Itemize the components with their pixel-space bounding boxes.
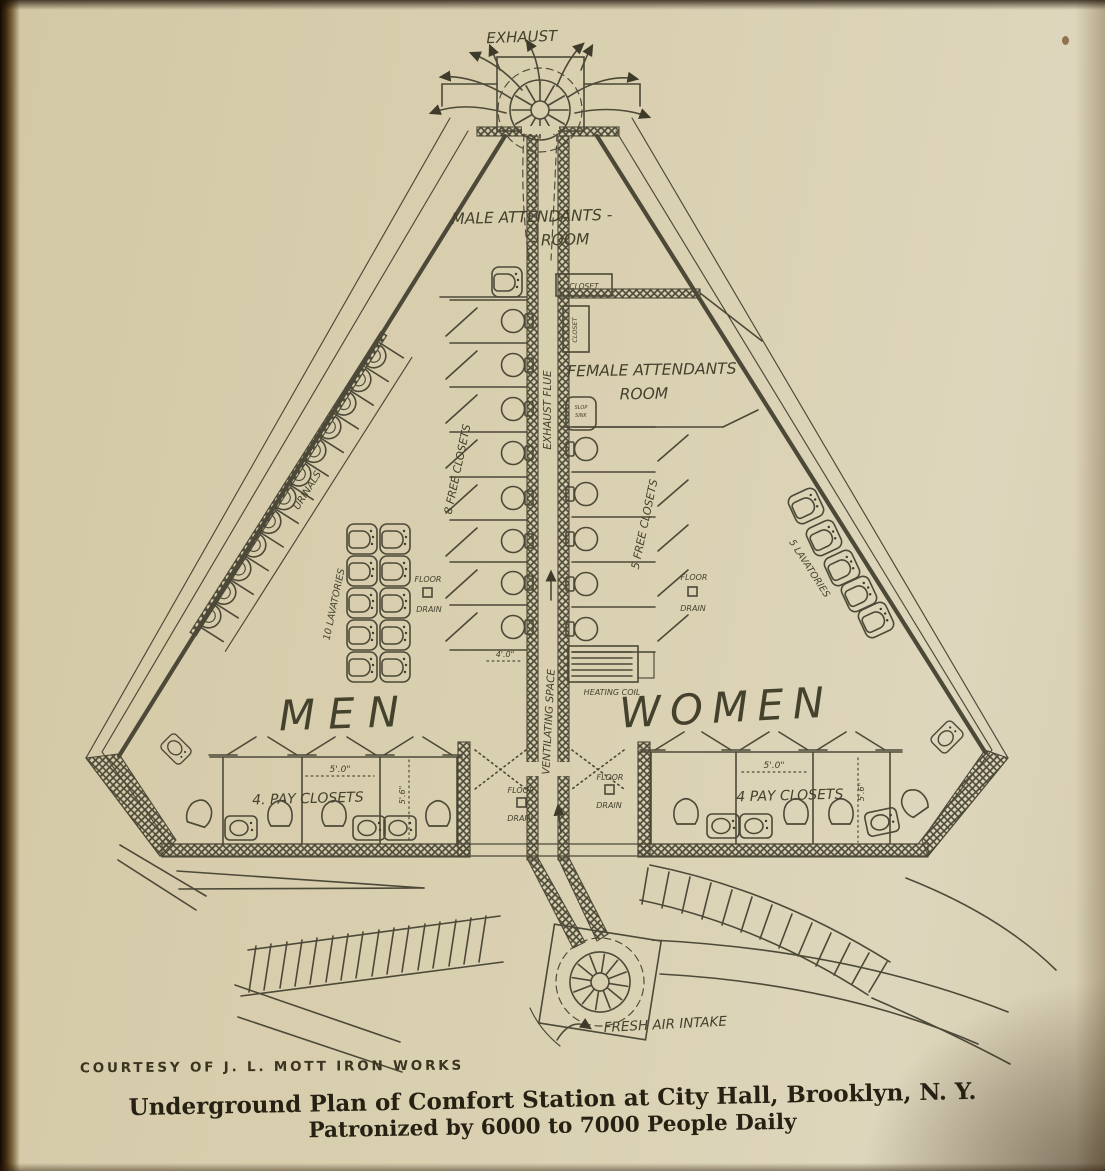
bottom-wall-left — [162, 844, 470, 857]
lavatory — [380, 588, 410, 618]
toilet — [674, 799, 698, 824]
lavatory — [856, 600, 896, 640]
sink — [740, 814, 772, 838]
stairs-left — [118, 845, 503, 1072]
lavatory — [380, 620, 410, 650]
toilet — [896, 785, 930, 820]
corner-sink — [929, 719, 965, 755]
closet-vertical-label: CLOSET — [571, 316, 579, 342]
sink — [864, 807, 900, 837]
scanned-page: EXHAUST EXHAUST FLUE VENTILATING SPACE C… — [0, 0, 1105, 1171]
courtesy-line: COURTESY OF J. L. MOTT IRON WORKS — [80, 1058, 464, 1077]
lavatory — [380, 556, 410, 586]
female-attendants-label2: ROOM — [619, 385, 668, 404]
lavatory — [347, 652, 377, 682]
dim-5ft6: 5'.6" — [857, 783, 866, 802]
svg-text:DRAIN: DRAIN — [507, 814, 533, 823]
lavatory — [822, 548, 862, 588]
female-attendants-label: FEMALE ATTENDANTS — [567, 360, 737, 381]
exhaust-flue-label: EXHAUST FLUE — [542, 370, 554, 450]
fresh-air-intake-label: FRESH AIR INTAKE — [603, 1014, 727, 1036]
lavatory — [347, 524, 377, 554]
men-room-label: MEN — [278, 687, 413, 741]
lavatory — [380, 524, 410, 554]
toilet — [566, 483, 598, 506]
page-gutter-shadow — [0, 0, 20, 1171]
floor-drain: FLOOR DRAIN — [415, 575, 442, 614]
floor-drain: FLOOR DRAIN — [680, 573, 707, 613]
ventilating-space-label: VENTILATING SPACE — [540, 668, 558, 775]
entry-vestibules — [458, 742, 650, 857]
pay-closets-women: 5'.0" 5'.6" 4 PAY CLOSETS — [640, 719, 965, 844]
svg-text:SINK: SINK — [575, 413, 587, 419]
svg-text:SLOP: SLOP — [575, 405, 588, 411]
toilet — [566, 438, 598, 461]
svg-text:DRAIN: DRAIN — [596, 801, 622, 810]
lavatories-men: 10 LAVATORIES — [322, 524, 410, 682]
page-corner-shadow — [825, 951, 1105, 1171]
toilet — [426, 801, 450, 826]
free-closets-women: 5 FREE CLOSETS — [566, 427, 688, 652]
pay-closets-men: 5'.0" 5'.6" 4. PAY CLOSETS — [159, 732, 462, 844]
svg-text:FLOOR: FLOOR — [415, 575, 442, 584]
female-attendants-room: CLOSET SLOP SINK FEMALE ATTENDANTS ROOM — [560, 289, 762, 430]
sink — [384, 816, 416, 840]
toilet — [566, 573, 598, 596]
dim-5ft: 5'.0" — [330, 765, 351, 775]
bevel-wall-left — [86, 754, 176, 856]
intake-fan-icon — [566, 948, 635, 1017]
dim-5ft6: 5'.6" — [398, 786, 407, 805]
lavatory — [839, 574, 879, 614]
dim-4ft: 4'.0" — [496, 650, 515, 659]
toilet — [184, 797, 215, 829]
sink — [707, 814, 739, 838]
pay-closets-men-label: 4. PAY CLOSETS — [252, 790, 364, 809]
slop-sink — [492, 267, 522, 297]
inner-wall-right — [597, 136, 985, 752]
free-closets-women-label: 5 FREE CLOSETS — [629, 478, 661, 570]
women-room-label: WOMEN — [618, 677, 834, 737]
urinal-row: URINALS — [190, 332, 415, 654]
paper-speck — [1062, 36, 1069, 45]
svg-text:FLOOR: FLOOR — [508, 786, 535, 795]
exhaust-label: EXHAUST — [486, 27, 559, 48]
pay-closets-women-label: 4 PAY CLOSETS — [736, 787, 844, 806]
male-attendants-label2: - ROOM — [530, 230, 590, 250]
dim-5ft: 5'.0" — [764, 761, 785, 771]
lavatory — [380, 652, 410, 682]
toilet — [566, 528, 598, 551]
slop-sink: SLOP SINK — [566, 397, 596, 430]
lavatory — [347, 556, 377, 586]
free-closets-men: 8 FREE CLOSETS 4'.0" — [442, 300, 533, 661]
lavatories-women: 5 LAVATORIES — [786, 486, 896, 640]
bottom-wall-right — [638, 844, 928, 857]
sink — [225, 816, 257, 840]
lavatory — [347, 620, 377, 650]
svg-text:DRAIN: DRAIN — [680, 604, 706, 613]
svg-text:FLOOR: FLOOR — [597, 773, 624, 782]
lavatories-men-label: 10 LAVATORIES — [322, 568, 348, 642]
svg-text:FLOOR: FLOOR — [681, 573, 708, 582]
bevel-wall-right — [922, 750, 1008, 856]
svg-text:DRAIN: DRAIN — [416, 605, 442, 614]
toilet — [566, 618, 598, 641]
male-attendants-label: MALE ATTENDANTS - — [451, 206, 613, 228]
lavatory — [804, 518, 844, 558]
lavatory — [347, 588, 377, 618]
page-top-shadow — [0, 0, 1105, 10]
corner-sink — [159, 732, 193, 766]
